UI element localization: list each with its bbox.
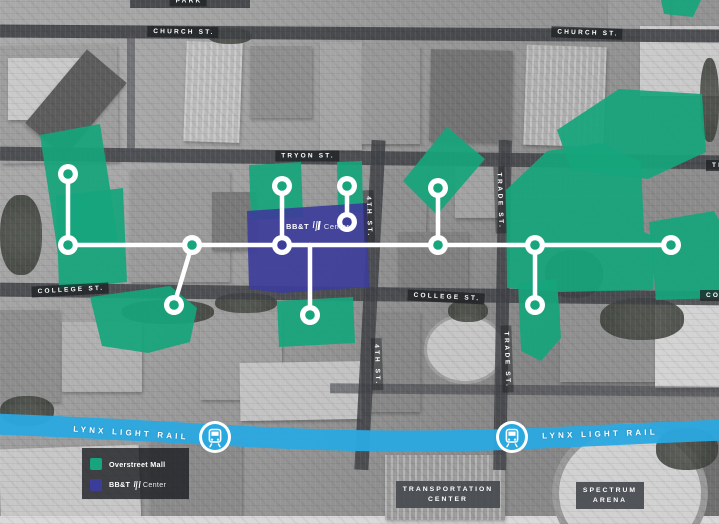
street-label-college: COLLEGE ST. (407, 289, 484, 304)
street-label-fourth: 4TH ST. (371, 338, 384, 390)
legend-label: Overstreet Mall (109, 460, 165, 469)
legend-bbt-name: Center (143, 480, 166, 489)
street-label-trade: TRADE ST. (493, 166, 506, 233)
map-canvas: PARK CHURCH ST. CHURCH ST. TRYON ST. TRY… (0, 0, 719, 524)
poi-line: ARENA (582, 496, 638, 506)
bbt-center-building-label: BB&T Center (286, 221, 349, 231)
poi-line: TRANSPORTATION (402, 485, 494, 495)
spectrum-arena-label: SPECTRUM ARENA (576, 482, 644, 509)
street-label-church: CHURCH ST. (147, 26, 219, 38)
bbt-logo-bars-icon (313, 221, 321, 231)
legend-item-bbt: BB&TCenter (90, 479, 189, 491)
legend-bbt-brand: BB&T (109, 480, 130, 489)
street-label-church: CHURCH ST. (551, 26, 623, 39)
lynx-rail-label: LYNX LIGHT RAIL (73, 424, 189, 441)
street-label-park: PARK (170, 0, 207, 7)
bbt-swatch-icon (90, 479, 102, 491)
legend-label: BB&TCenter (109, 480, 166, 490)
overstreet-swatch-icon (90, 458, 102, 470)
poi-line: SPECTRUM (582, 486, 638, 496)
street-label-fourth: 4TH ST. (363, 190, 376, 242)
street-label-trade: TRADE ST. (500, 325, 513, 392)
street-label-college: COLLEGE ST. (700, 290, 719, 301)
map-labels: PARK CHURCH ST. CHURCH ST. TRYON ST. TRY… (0, 0, 719, 524)
transportation-center-label: TRANSPORTATION CENTER (396, 481, 500, 508)
bbt-brand-text: BB&T (286, 222, 309, 231)
street-label-tryon: TRYON ST. (275, 151, 339, 162)
bbt-name-text: Center (324, 222, 350, 231)
lynx-rail-label: LYNX LIGHT RAIL (542, 427, 658, 440)
map-legend: Overstreet Mall BB&TCenter (82, 448, 189, 499)
street-label-tryon: TRYON ST. (706, 160, 719, 171)
poi-line: CENTER (402, 495, 494, 505)
bbt-logo-bars-icon (133, 481, 140, 490)
legend-item-overstreet: Overstreet Mall (90, 458, 189, 470)
street-label-college: COLLEGE ST. (31, 282, 108, 297)
